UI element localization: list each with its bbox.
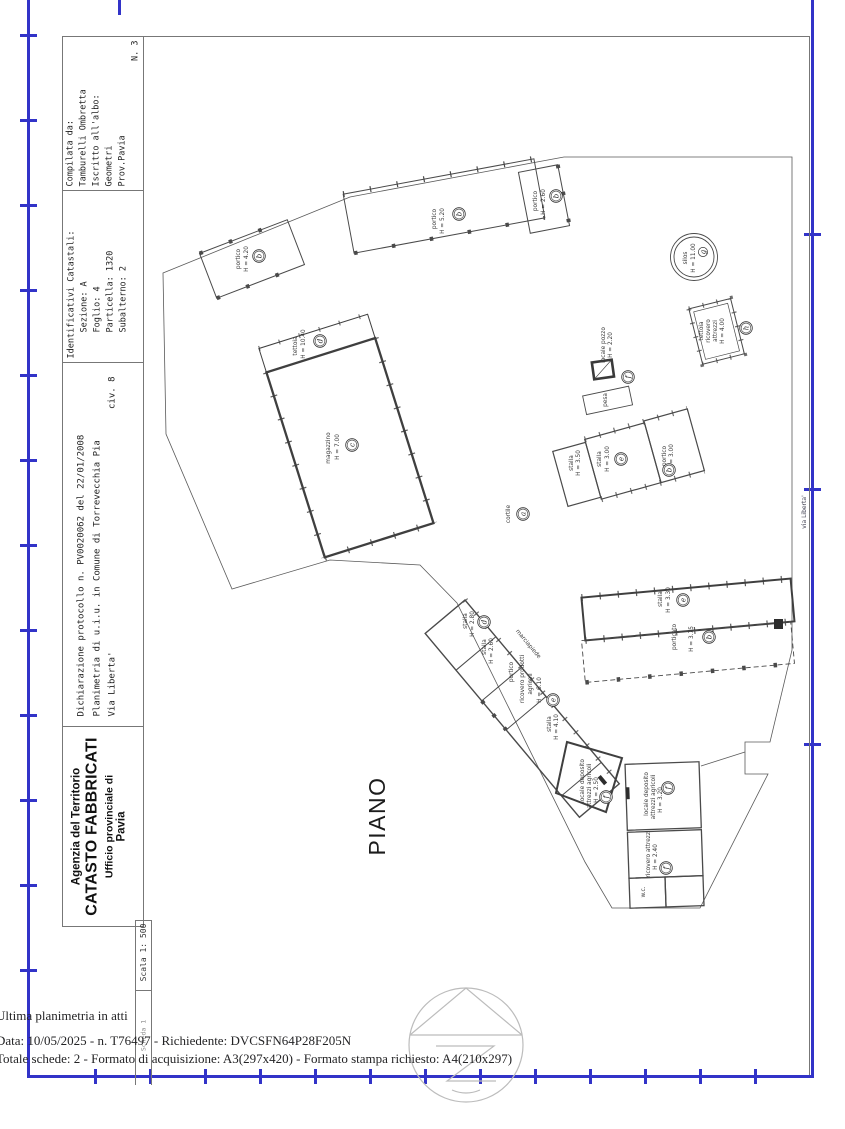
svg-text:b: b (455, 211, 464, 216)
property-boundary (163, 157, 792, 908)
svg-text:stalla: stalla (658, 591, 664, 607)
svg-text:H = 4.10: H = 4.10 (554, 714, 560, 740)
svg-text:c: c (348, 443, 357, 447)
svg-text:ricovero prodotti: ricovero prodotti (520, 655, 526, 704)
building-porticato (582, 622, 795, 683)
svg-text:g: g (699, 249, 708, 254)
room-labels: portico H = 4.20 portico H = 5.20 portic… (236, 189, 808, 898)
footer-note: Ultima planimetria in atti (0, 1008, 128, 1024)
svg-text:H = 2.60: H = 2.60 (489, 638, 495, 664)
svg-text:H = 4.20: H = 4.20 (244, 246, 250, 272)
svg-text:ricovero: ricovero (706, 319, 712, 343)
floor-plan-drawing: portico H = 4.20 portico H = 5.20 portic… (0, 0, 845, 1129)
svg-text:tettoia: tettoia (699, 321, 705, 341)
svg-text:H = 2.80: H = 2.80 (470, 611, 476, 637)
svg-text:cortile: cortile (506, 504, 512, 523)
svg-text:H = 11.00: H = 11.00 (691, 243, 697, 273)
svg-text:porticato: porticato (672, 624, 678, 651)
svg-text:b: b (705, 634, 714, 639)
svg-text:stalla: stalla (463, 613, 469, 629)
svg-text:H = 5.20: H = 5.20 (440, 208, 446, 234)
building-portico-nw (200, 220, 305, 298)
street-label: via Liberta' (801, 495, 808, 529)
svg-text:H = 2.40: H = 2.40 (653, 844, 659, 870)
connection-wall (701, 752, 745, 766)
svg-text:e: e (549, 698, 558, 702)
svg-text:stalla: stalla (547, 716, 553, 732)
svg-text:portico: portico (236, 248, 242, 269)
svg-text:stalla: stalla (482, 639, 488, 655)
svg-text:H = 7.00: H = 7.00 (335, 434, 341, 460)
svg-text:H = 2.20: H = 2.20 (608, 332, 614, 358)
svg-text:H = 3.30: H = 3.30 (666, 587, 672, 613)
cadastral-planimetry-page: Compilata da: Tamburelli Ombretta Iscrit… (0, 0, 845, 1129)
svg-text:b: b (255, 253, 264, 258)
svg-text:locale deposito: locale deposito (644, 772, 650, 816)
svg-text:H = 3.75: H = 3.75 (689, 626, 695, 652)
small-structure (774, 619, 783, 629)
svg-text:portico: portico (432, 208, 438, 229)
footer-format-info: Totale schede: 2 - Formato di acquisizio… (0, 1051, 512, 1067)
svg-text:portico: portico (509, 661, 515, 682)
svg-text:pesa: pesa (603, 393, 609, 407)
svg-text:H = 3.50: H = 3.50 (576, 450, 582, 476)
svg-text:e: e (679, 598, 688, 602)
svg-text:silos: silos (683, 252, 689, 265)
svg-text:e: e (617, 457, 626, 461)
building-portico-long (343, 159, 545, 253)
svg-text:marciapiede: marciapiede (514, 629, 542, 661)
svg-text:attrezzi agricoli: attrezzi agricoli (651, 774, 657, 819)
svg-text:H = 2.50: H = 2.50 (594, 777, 600, 803)
svg-text:locale pozzo: locale pozzo (601, 327, 607, 363)
svg-text:h: h (742, 326, 751, 331)
svg-text:H = 10.40: H = 10.40 (301, 329, 307, 359)
svg-text:locale deposito: locale deposito (580, 759, 586, 803)
svg-text:H = 3.00: H = 3.00 (605, 446, 611, 472)
svg-text:H = 4.00: H = 4.00 (720, 318, 726, 344)
subalterno-letters: b b b d c g h f a e b e b d e f f f (253, 190, 753, 875)
svg-text:tettoia: tettoia (293, 336, 299, 356)
svg-text:agricoli: agricoli (528, 673, 534, 695)
svg-text:ricovero attrezzi: ricovero attrezzi (646, 830, 652, 877)
svg-text:attrezzi agricoli: attrezzi agricoli (587, 763, 593, 808)
svg-text:stalla: stalla (569, 455, 575, 471)
svg-text:a: a (519, 512, 528, 516)
svg-text:w.c.: w.c. (641, 886, 647, 897)
svg-text:H = 6.10: H = 6.10 (537, 677, 543, 703)
svg-text:b: b (665, 467, 674, 472)
svg-text:stalla: stalla (597, 451, 603, 467)
svg-text:H = 2.60: H = 2.60 (541, 189, 547, 215)
svg-text:magazzino: magazzino (326, 432, 332, 464)
footer-request-info: Data: 10/05/2025 - n. T76497 - Richieden… (0, 1033, 351, 1049)
svg-text:portico: portico (662, 445, 668, 466)
svg-text:portico: portico (533, 190, 539, 211)
svg-text:d: d (480, 619, 489, 624)
building-magazzino (259, 314, 434, 557)
svg-text:b: b (552, 193, 561, 198)
svg-text:attrezzi: attrezzi (713, 320, 719, 342)
svg-text:d: d (316, 338, 325, 343)
